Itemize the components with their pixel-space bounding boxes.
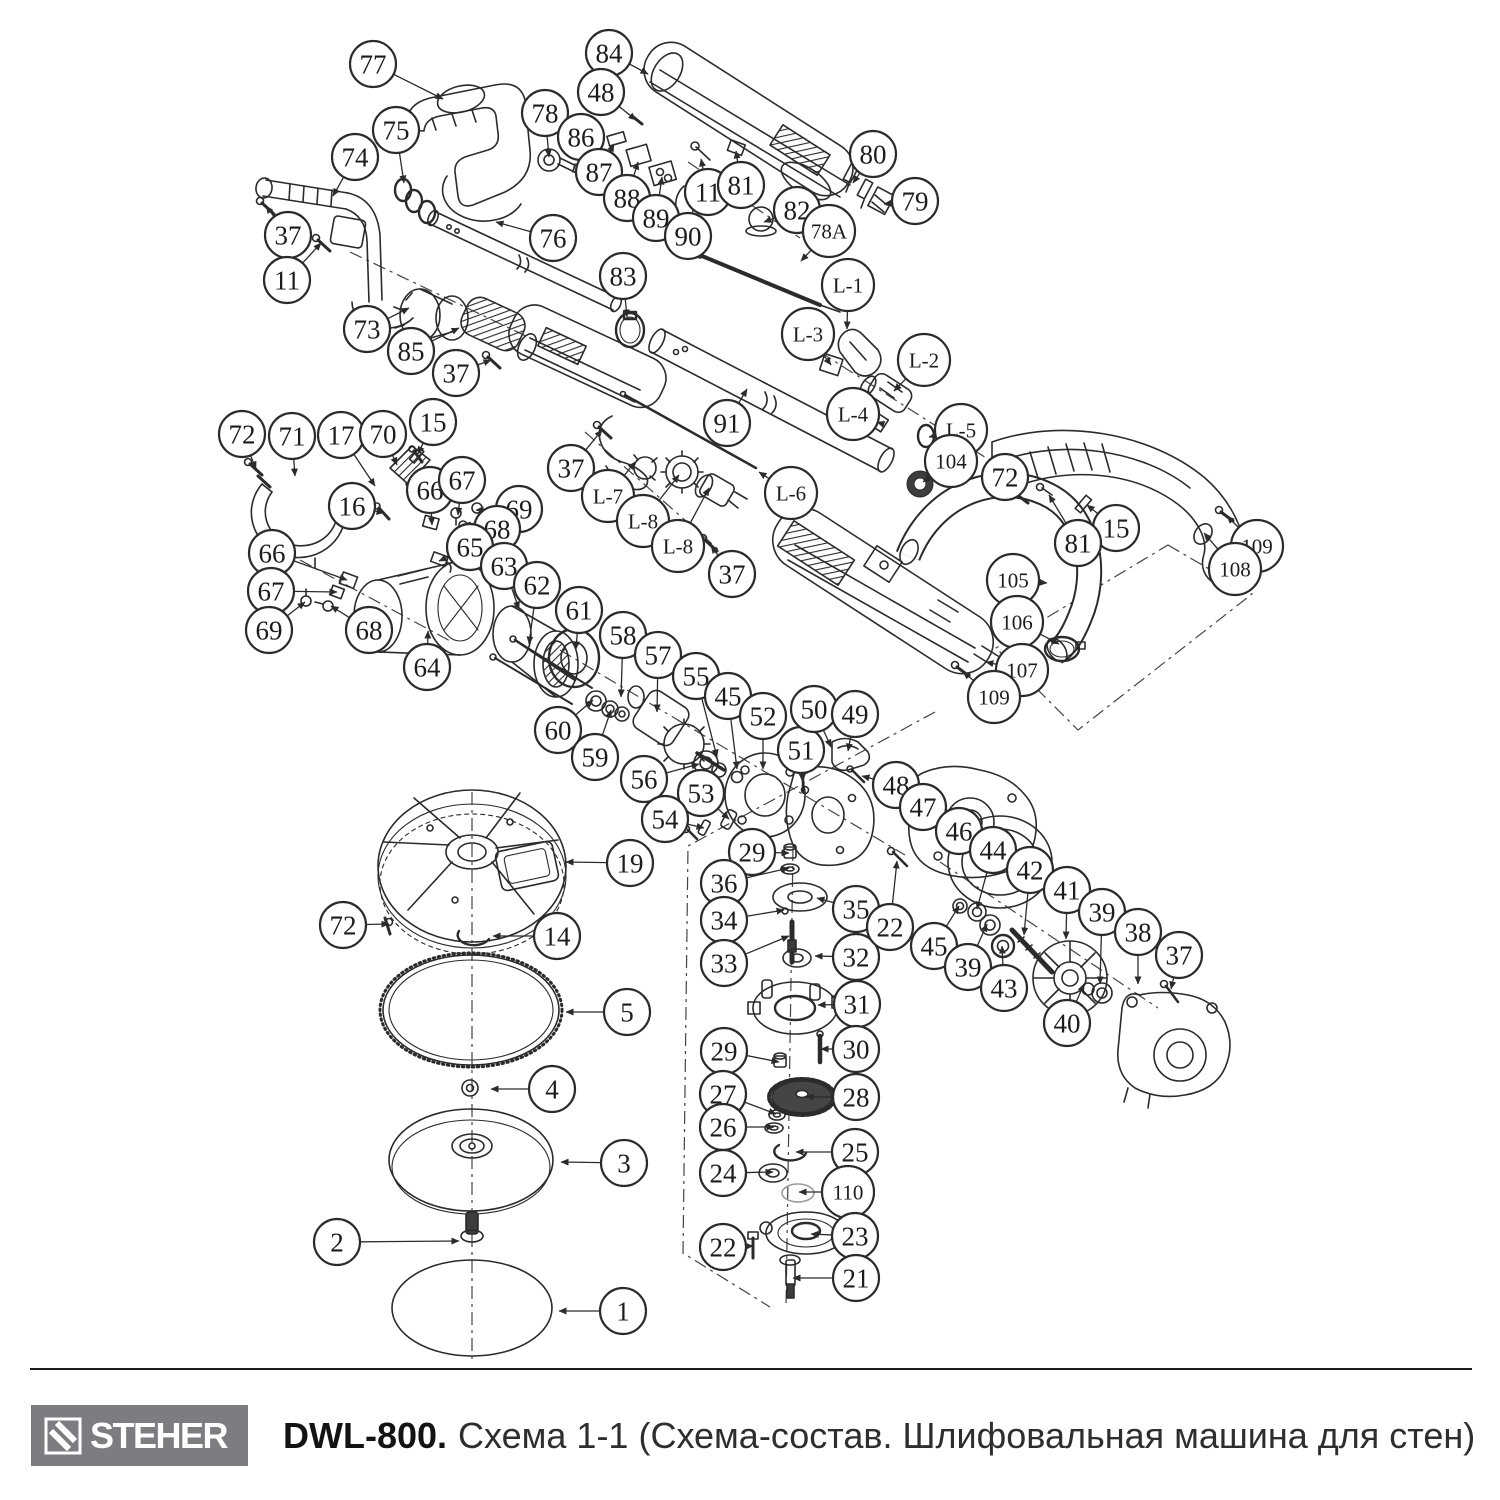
callout-1: 1: [559, 1288, 646, 1334]
callout-30: 30: [821, 1026, 879, 1072]
leader-line: [659, 177, 662, 195]
callout-49: 49: [832, 691, 878, 751]
callout-number: 77: [360, 50, 387, 80]
construction-lines: [300, 162, 1252, 1360]
part-rod: [697, 252, 840, 312]
leader-line: [946, 906, 959, 926]
leader-line: [759, 472, 769, 479]
callout-109: 109: [963, 671, 1020, 723]
callout-number: 43: [991, 974, 1018, 1004]
callout-number: 57: [645, 641, 672, 671]
leader-line: [619, 106, 636, 120]
callout-number: 59: [582, 743, 609, 773]
callout-number: 37: [719, 560, 746, 590]
callout-number: 36: [711, 869, 738, 899]
callout-number: L-6: [776, 482, 806, 506]
callout-number: 69: [256, 616, 283, 646]
callout-15: 15: [410, 399, 456, 454]
callout-number: 67: [449, 466, 476, 496]
callout-32: 32: [815, 934, 879, 980]
leader-line: [884, 203, 892, 204]
callout-number: L-1: [833, 274, 863, 298]
callout-number: 84: [596, 39, 624, 69]
leader-line: [1066, 913, 1067, 939]
leader-line: [576, 633, 577, 649]
callout-number: L-8: [628, 510, 658, 534]
callout-72: 72: [219, 411, 265, 469]
leader-line: [621, 658, 622, 697]
callout-number: 50: [801, 695, 828, 725]
footer-divider: [30, 1368, 1472, 1370]
callout-number: 16: [339, 492, 366, 522]
callout-104: 104: [923, 435, 977, 487]
leader-line: [823, 730, 831, 747]
callout-number: L-3: [793, 323, 823, 347]
callout-number: L-4: [838, 403, 869, 427]
leader-line: [1087, 505, 1098, 514]
callout-37: 37: [265, 206, 311, 258]
leader-line: [657, 678, 658, 712]
callout-number: 68: [356, 616, 383, 646]
callout-number: L-7: [593, 485, 623, 509]
part-ring-set: [380, 931, 562, 1096]
callout-number: 11: [274, 266, 300, 296]
callout-number: 3: [617, 1149, 631, 1179]
brand-emblem-icon: [44, 1417, 82, 1455]
callout-number: 39: [1089, 898, 1116, 928]
callout-number: 37: [558, 454, 585, 484]
callout-number: 37: [443, 359, 470, 389]
brand-name: STEHER: [90, 1415, 227, 1457]
leader-line: [394, 74, 443, 99]
leader-line: [431, 513, 432, 525]
callout-70: 70: [360, 411, 406, 465]
callout-24: 24: [700, 1150, 773, 1196]
callout-number: 108: [1219, 558, 1251, 582]
callout-number: 38: [1125, 918, 1152, 948]
callout-number: 109: [978, 686, 1010, 710]
schematic-page: 77844878868788899011818278A8079757437117…: [0, 0, 1500, 1500]
leader-line: [331, 606, 350, 618]
callout-number: 14: [544, 922, 572, 952]
callout-number: 78A: [811, 220, 848, 244]
leader-line: [360, 1241, 459, 1242]
callout-number: 52: [750, 702, 777, 732]
callout-number: 33: [711, 949, 738, 979]
callout-91: 91: [704, 389, 750, 446]
exploded-view-diagram: 77844878868788899011818278A8079757437117…: [0, 0, 1500, 1500]
callout-number: 75: [383, 116, 410, 146]
callout-3: 3: [561, 1140, 647, 1186]
leader-line: [366, 924, 389, 925]
callout-number: 42: [1017, 856, 1044, 886]
callout-L-6: L-6: [759, 467, 817, 519]
callout-number: 106: [1001, 611, 1033, 635]
callout-number: 55: [683, 662, 710, 692]
leader-line: [634, 162, 638, 176]
callout-16: 16: [329, 483, 384, 529]
callout-number: 76: [540, 224, 567, 254]
callout-37: 37: [709, 546, 755, 597]
part-mid-housing: [502, 298, 674, 415]
callout-number: 45: [715, 682, 742, 712]
callout-number: 26: [710, 1113, 737, 1143]
callout-number: 83: [610, 262, 637, 292]
leader-line: [629, 64, 648, 74]
callout-number: 46: [946, 817, 973, 847]
part-bearing-housing: [1118, 981, 1230, 1109]
callout-L-4: L-4: [827, 388, 879, 440]
drawing-title: Схема 1-1 (Схема-состав. Шлифовальная ма…: [458, 1415, 1475, 1457]
callout-number: 47: [910, 793, 937, 823]
part-top-handle: [406, 81, 530, 221]
leader-line: [496, 222, 531, 232]
callout-number: 53: [688, 779, 715, 809]
leader-line: [736, 151, 738, 162]
callout-number: 78: [532, 99, 559, 129]
callout-number: 2: [330, 1228, 344, 1258]
leader-line: [747, 910, 784, 916]
callout-number: 49: [842, 700, 869, 730]
callout-26: 26: [700, 1104, 774, 1150]
callout-number: 22: [710, 1233, 737, 1263]
drawing-caption: DWL-800. Схема 1-1 (Схема-состав. Шлифов…: [283, 1405, 1475, 1466]
leader-line: [388, 308, 409, 319]
callout-number: 37: [1166, 941, 1193, 971]
leader-line: [333, 177, 344, 196]
leader-line: [294, 561, 347, 580]
leader-line: [701, 159, 703, 170]
leader-line: [801, 250, 811, 261]
callout-number: 67: [258, 577, 285, 607]
callout-number: 65: [457, 533, 484, 563]
callout-number: 79: [902, 187, 929, 217]
callout-number: 81: [1065, 529, 1092, 559]
callout-number: 85: [398, 337, 425, 367]
callout-number: 15: [1103, 514, 1130, 544]
callout-number: 110: [833, 1181, 864, 1205]
callout-number: 56: [631, 765, 658, 795]
callout-68: 68: [331, 606, 392, 653]
leader-line: [802, 773, 803, 781]
callout-74: 74: [332, 134, 378, 196]
callout-number: 58: [610, 621, 637, 651]
leader-line: [575, 700, 593, 715]
part-tube-clamp: [616, 312, 644, 347]
callout-number: 28: [843, 1083, 870, 1113]
callout-number: 4: [545, 1075, 559, 1105]
leader-line: [566, 862, 607, 863]
callout-number: 91: [714, 409, 741, 439]
callout-34: 34: [701, 897, 784, 943]
callout-number: 21: [843, 1264, 870, 1294]
callout-number: 17: [328, 421, 355, 451]
callout-number: 23: [842, 1222, 869, 1252]
callout-number: 45: [921, 932, 948, 962]
callout-number: 30: [843, 1035, 870, 1065]
leader-line: [731, 719, 737, 769]
callout-19: 19: [566, 840, 653, 886]
callout-72: 72: [982, 454, 1028, 500]
callout-number: 64: [414, 653, 442, 683]
callout-21: 21: [793, 1255, 879, 1301]
leader-line: [745, 936, 789, 954]
callout-number: 48: [588, 78, 615, 108]
callout-number: 44: [980, 836, 1008, 866]
callout-79: 79: [884, 178, 938, 224]
leader-line: [1024, 893, 1028, 935]
callout-number: L-2: [909, 349, 939, 373]
leader-line: [811, 1234, 832, 1235]
leader-line: [892, 861, 897, 904]
callout-number: 24: [710, 1159, 738, 1189]
brand-logo: STEHER: [31, 1405, 248, 1466]
callout-number: 35: [843, 895, 870, 925]
leader-line: [977, 924, 987, 946]
leader-line: [294, 459, 295, 476]
callout-number: 72: [330, 911, 357, 941]
callout-number: 19: [617, 849, 644, 879]
callout-22: 22: [700, 1224, 753, 1270]
callout-number: 105: [997, 569, 1029, 593]
callout-5: 5: [566, 989, 650, 1035]
callout-61: 61: [556, 587, 602, 649]
callout-69: 69: [246, 602, 305, 653]
callout-number: 70: [370, 420, 397, 450]
callout-31: 31: [818, 981, 880, 1027]
callout-72: 72: [320, 902, 389, 948]
callout-80: 80: [850, 131, 896, 183]
callout-number: 37: [275, 221, 302, 251]
callout-number: 29: [711, 1037, 738, 1067]
part-upper-tube: [426, 209, 624, 313]
callout-75: 75: [373, 107, 419, 183]
callout-number: 71: [279, 422, 306, 452]
callout-78A: 78A: [801, 205, 855, 261]
leader-line: [354, 454, 375, 486]
callout-number: 73: [354, 315, 381, 345]
callout-14: 14: [493, 913, 580, 959]
leader-line: [294, 591, 337, 592]
leader-line: [458, 503, 459, 515]
callout-number: 41: [1054, 876, 1081, 906]
callout-29: 29: [701, 1028, 779, 1074]
callout-number: 74: [342, 143, 370, 173]
callout-number: 31: [844, 990, 871, 1020]
callout-number: 86: [568, 123, 595, 153]
callout-number: 72: [992, 463, 1019, 493]
callout-38: 38: [1115, 909, 1161, 984]
callout-number: 15: [420, 408, 447, 438]
callout-number: 22: [877, 913, 904, 943]
callout-number: 81: [728, 171, 755, 201]
callout-76: 76: [496, 215, 576, 261]
callout-number: 34: [711, 906, 739, 936]
callout-48: 48: [578, 69, 636, 120]
leader-line: [478, 360, 491, 365]
leader-line: [547, 136, 549, 157]
callout-number: 1: [616, 1297, 630, 1327]
callout-number: 90: [675, 222, 702, 252]
callout-number: 66: [259, 539, 286, 569]
callout-71: 71: [269, 413, 315, 476]
callout-number: 40: [1054, 1009, 1081, 1039]
callout-number: 104: [935, 450, 967, 474]
callout-number: 72: [229, 420, 256, 450]
callout-number: 61: [566, 596, 593, 626]
leader-line: [1100, 935, 1101, 984]
part-pad-disc: [389, 1109, 553, 1356]
leader-line: [561, 1162, 601, 1163]
callout-number: 63: [491, 552, 518, 582]
callout-4: 4: [491, 1066, 575, 1112]
callout-number: 29: [739, 838, 766, 868]
leader-line: [1039, 582, 1047, 583]
callout-number: L-8: [663, 535, 693, 559]
callout-77: 77: [350, 41, 443, 99]
model-number: DWL-800.: [283, 1415, 447, 1457]
leader-line: [1171, 977, 1174, 989]
callout-number: 60: [545, 716, 572, 746]
callout-110: 110: [799, 1166, 874, 1218]
callout-33: 33: [701, 936, 789, 986]
callout-64: 64: [404, 631, 450, 690]
callout-81: 81: [718, 151, 764, 208]
callout-number: 32: [843, 943, 870, 973]
callout-number: 62: [524, 571, 551, 601]
callout-number: 39: [955, 953, 982, 983]
callout-number: 25: [842, 1138, 869, 1168]
callout-51: 51: [778, 727, 824, 781]
callout-number: 5: [620, 998, 634, 1028]
callout-number: 51: [788, 736, 815, 766]
part-rear-housing: [761, 497, 1004, 685]
leader-line: [659, 475, 679, 501]
callout-number: 54: [652, 805, 680, 835]
callout-L-2: L-2: [894, 334, 950, 391]
leader-line: [1002, 946, 1003, 965]
callout-number: 80: [860, 140, 887, 170]
leader-line: [746, 1172, 773, 1173]
callout-2: 2: [314, 1219, 459, 1265]
leader-line: [862, 776, 874, 779]
